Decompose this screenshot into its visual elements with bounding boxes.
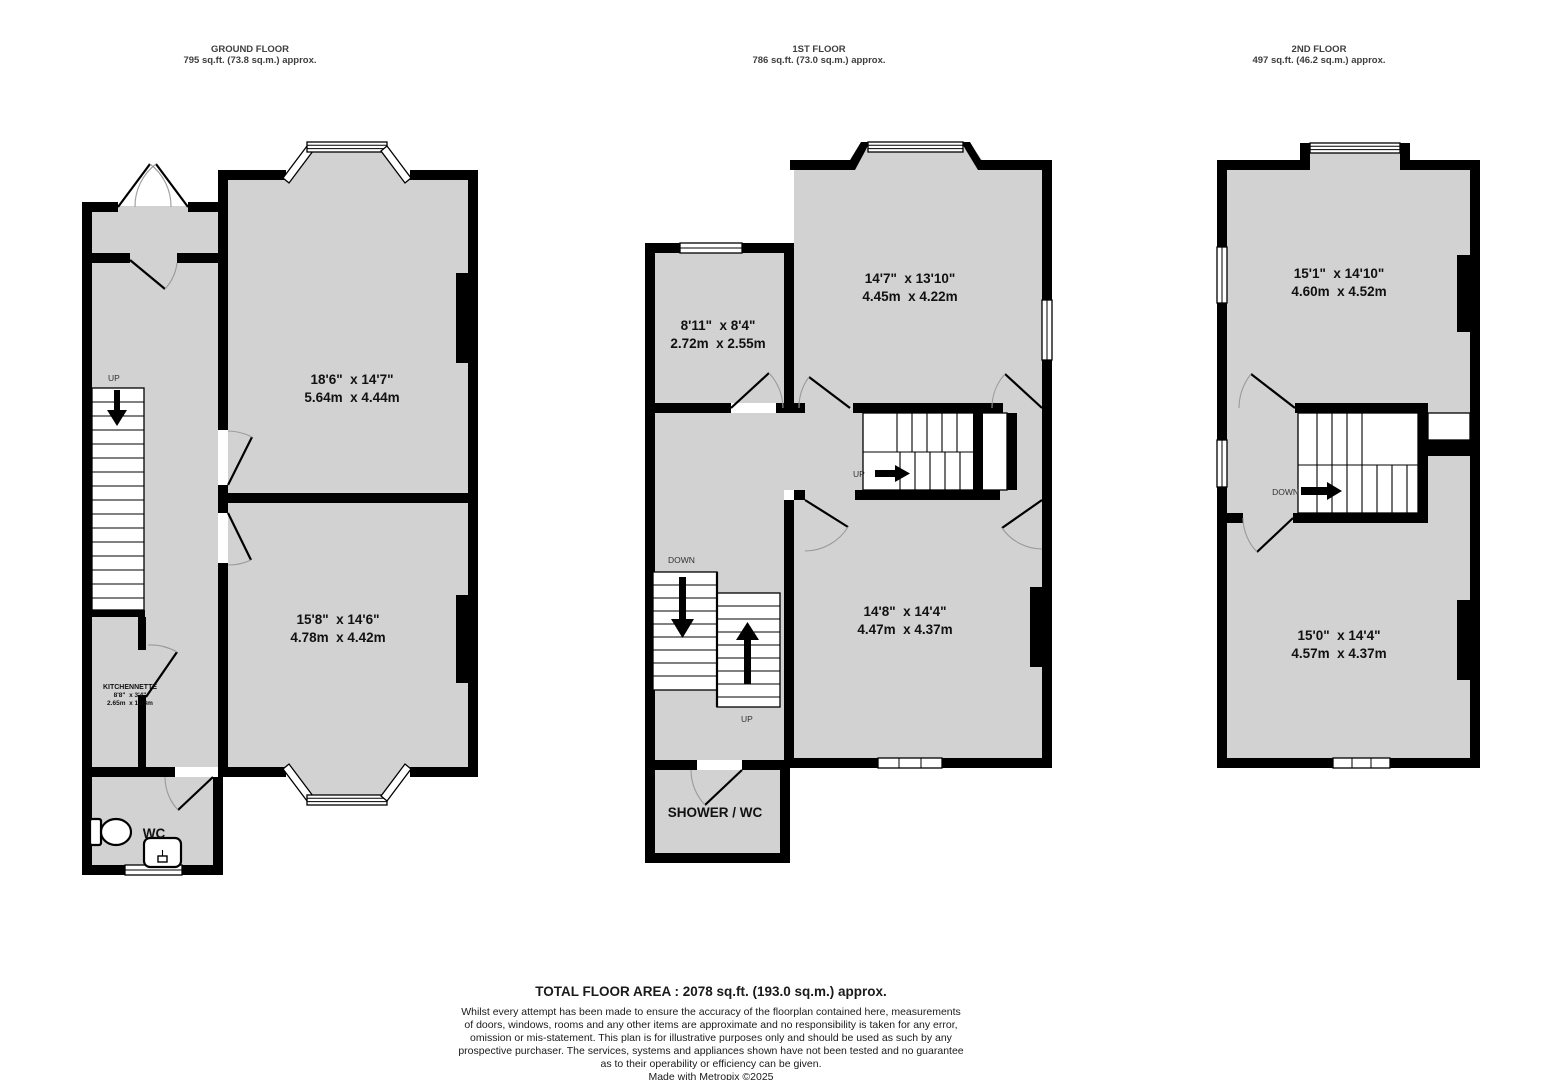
room-dims-back-imperial: 15'8" x 14'6" (296, 612, 379, 627)
bay-window (307, 142, 387, 152)
window (1333, 758, 1390, 768)
window (878, 758, 942, 768)
disclaimer-line: of doors, windows, rooms and any other i… (431, 1019, 991, 1032)
sink-icon (144, 838, 181, 867)
disclaimer: Whilst every attempt has been made to en… (431, 1006, 991, 1071)
disclaimer-line: as to their operability or efficiency ca… (431, 1058, 991, 1071)
first-room-fills (655, 148, 1042, 853)
chimney-breast (456, 595, 468, 683)
kitchennette-metric: 2.65m x 1.03m (107, 700, 153, 707)
room-dims-front-imperial: 18'6" x 14'7" (310, 372, 393, 387)
first-mid-stairs: UP (853, 413, 1017, 490)
ground-floor-area: 795 sq.ft. (73.8 sq.m.) approx. (120, 55, 380, 66)
shower-wc-label: SHOWER / WC (668, 805, 763, 820)
bay-interior (1310, 153, 1400, 170)
room-dims-front-metric: 4.60m x 4.52m (1291, 284, 1386, 299)
up-label: UP (741, 714, 753, 724)
kitchennette-label: KITCHENNETTE (103, 684, 157, 691)
toilet-icon (90, 819, 131, 845)
metropix-credit: Made with Metropix ©2025 (431, 1071, 991, 1080)
bay-window (307, 795, 387, 805)
room-dims-back-imperial: 14'8" x 14'4" (863, 604, 946, 619)
wc-label: WC (143, 826, 166, 841)
second-floor-title: 2ND FLOOR (1189, 44, 1449, 55)
room-dims-front-imperial: 14'7" x 13'10" (865, 271, 956, 286)
ground-floor-title: GROUND FLOOR (120, 44, 380, 55)
ground-room-fills (92, 148, 468, 865)
floorplan-second: DOWN 15'1" x 14'10" 4.60m x 4.52m 15'0" … (1213, 140, 1485, 772)
disclaimer-line: omission or mis-statement. This plan is … (431, 1032, 991, 1045)
room-dims-back-metric: 4.57m x 4.37m (1291, 646, 1386, 661)
room-dims-small-metric: 2.72m x 2.55m (670, 336, 765, 351)
floorplan-page: GROUND FLOOR 795 sq.ft. (73.8 sq.m.) app… (0, 0, 1562, 1080)
total-floor-area: TOTAL FLOOR AREA : 2078 sq.ft. (193.0 sq… (431, 984, 991, 999)
first-floor-title: 1ST FLOOR (689, 44, 949, 55)
second-floor-header: 2ND FLOOR 497 sq.ft. (46.2 sq.m.) approx… (1189, 44, 1449, 66)
room-dims-back-metric: 4.78m x 4.42m (290, 630, 385, 645)
chimney-breast (1457, 255, 1470, 332)
room-dims-front-metric: 5.64m x 4.44m (304, 390, 399, 405)
up-label: UP (853, 469, 865, 479)
down-label: DOWN (1272, 487, 1299, 497)
ground-floor-header: GROUND FLOOR 795 sq.ft. (73.8 sq.m.) app… (120, 44, 380, 66)
second-floor-area: 497 sq.ft. (46.2 sq.m.) approx. (1189, 55, 1449, 66)
down-label: DOWN (668, 555, 695, 565)
chimney-breast (1457, 600, 1470, 680)
footer: TOTAL FLOOR AREA : 2078 sq.ft. (193.0 sq… (431, 984, 991, 1080)
disclaimer-line: Whilst every attempt has been made to en… (431, 1006, 991, 1019)
landing-gap (784, 413, 794, 490)
kitchennette-imperial: 8'8" x 3'4" (114, 692, 147, 699)
bay-window (868, 142, 963, 152)
floorplan-ground: UP (80, 140, 485, 880)
floorplan-first: UP DOWN (643, 140, 1058, 865)
chimney-breast (1030, 587, 1042, 667)
up-label: UP (108, 373, 120, 383)
room-dims-back-imperial: 15'0" x 14'4" (1297, 628, 1380, 643)
room-dims-front-metric: 4.45m x 4.22m (862, 289, 957, 304)
room-dims-front-imperial: 15'1" x 14'10" (1294, 266, 1385, 281)
bay-window (1310, 143, 1400, 153)
porch (92, 206, 218, 258)
room-dims-small-imperial: 8'11" x 8'4" (681, 318, 756, 333)
chimney-breast (456, 273, 468, 363)
ground-stairs: UP (92, 373, 144, 610)
disclaimer-line: prospective purchaser. The services, sys… (431, 1045, 991, 1058)
first-floor-header: 1ST FLOOR 786 sq.ft. (73.0 sq.m.) approx… (689, 44, 949, 66)
room-dims-back-metric: 4.47m x 4.37m (857, 622, 952, 637)
first-floor-area: 786 sq.ft. (73.0 sq.m.) approx. (689, 55, 949, 66)
reception-rooms (228, 180, 468, 767)
